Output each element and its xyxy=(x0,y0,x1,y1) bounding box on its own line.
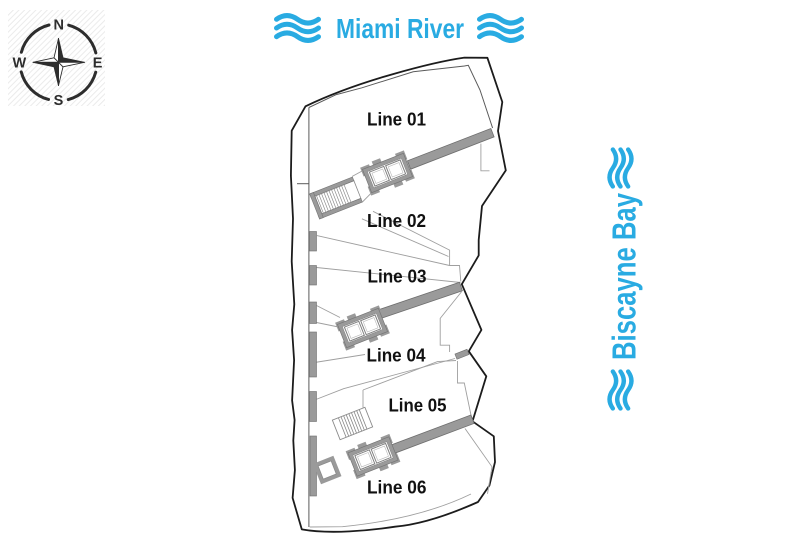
svg-text:Line 06: Line 06 xyxy=(367,476,427,497)
svg-text:Line 01: Line 01 xyxy=(367,109,426,130)
svg-text:E: E xyxy=(93,56,103,72)
svg-text:N: N xyxy=(53,18,63,34)
svg-text:Line 03: Line 03 xyxy=(368,266,427,287)
svg-text:Line 05: Line 05 xyxy=(389,394,447,415)
svg-text:Line 02: Line 02 xyxy=(367,210,426,231)
svg-text:Biscayne Bay: Biscayne Bay xyxy=(606,193,643,360)
svg-text:W: W xyxy=(13,56,27,72)
svg-text:Line 04: Line 04 xyxy=(367,344,427,365)
svg-text:S: S xyxy=(54,93,64,109)
svg-text:Miami River: Miami River xyxy=(336,13,464,44)
